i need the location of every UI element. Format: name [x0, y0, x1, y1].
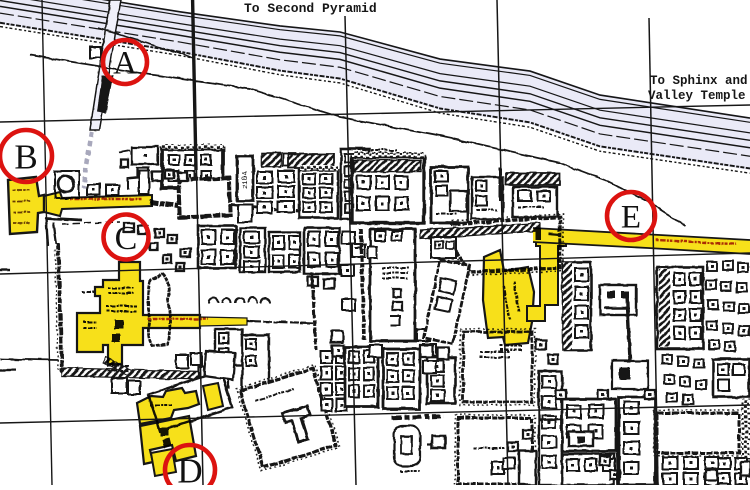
- svg-text:D: D: [177, 451, 202, 485]
- svg-text:A: A: [113, 46, 137, 82]
- svg-text:2104: 2104: [242, 171, 250, 190]
- svg-text:E: E: [621, 200, 641, 236]
- svg-text:B: B: [14, 137, 37, 176]
- svg-text:To Sphinx and: To Sphinx and: [650, 74, 748, 88]
- svg-text:Valley Temple: Valley Temple: [648, 89, 746, 103]
- svg-text:C: C: [115, 220, 138, 257]
- svg-text:To Second Pyramid: To Second Pyramid: [244, 1, 377, 16]
